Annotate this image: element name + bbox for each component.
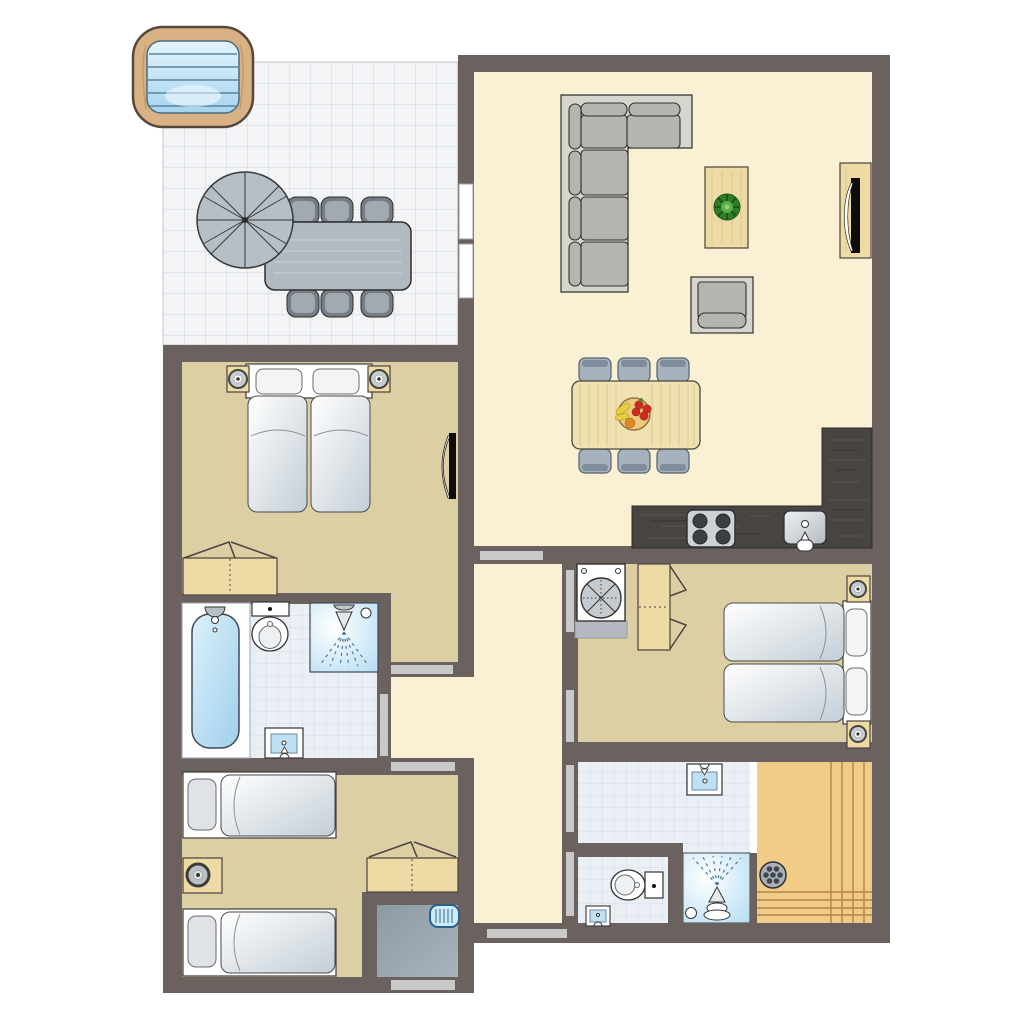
wall-top (458, 55, 890, 72)
nightstand (227, 366, 249, 392)
hot-tub (133, 27, 253, 127)
sauna-stove (760, 862, 786, 888)
toilet (611, 870, 663, 900)
wall-outer-left (163, 345, 182, 993)
terrace-chair (321, 289, 353, 317)
washbasin (265, 728, 303, 758)
bathroom2-floor (578, 762, 750, 853)
sauna-floor (757, 762, 872, 923)
nightstand (847, 576, 870, 602)
wall-storage-top (362, 892, 458, 905)
armchair (691, 277, 753, 333)
hallway-floor (474, 564, 562, 923)
door-toilet-room (566, 852, 574, 916)
terrace-window-2 (459, 244, 473, 298)
shower (310, 603, 378, 672)
door-bedroom3 (566, 690, 574, 742)
door-bedroom2 (391, 762, 455, 771)
wall-shower-sauna (750, 853, 757, 923)
wall-toilet-top (578, 843, 683, 857)
dining-chair (579, 449, 611, 473)
terrace-chair (361, 197, 393, 225)
tv-cabinet (840, 163, 871, 258)
floor-plan-page (0, 0, 1024, 1024)
door-storage-back (391, 980, 455, 990)
terrace-chair (321, 197, 353, 225)
terrace-chair (361, 289, 393, 317)
coffee-table (705, 167, 748, 248)
bedroom1-floor-ext (391, 593, 458, 662)
wall-bed3-bath2 (562, 742, 890, 762)
washing-machine (575, 564, 627, 638)
single-bed (183, 909, 336, 976)
floor-plan-canvas (0, 0, 1024, 1024)
door-laundry-nook (566, 570, 574, 632)
wall-terrace-bottom (163, 345, 474, 362)
dining-chair (657, 449, 689, 473)
dining-chair (618, 358, 650, 382)
wall-toilet-shower (668, 843, 683, 923)
door-living-hall (480, 551, 543, 560)
small-washbasin (586, 906, 610, 926)
dining-chair (579, 358, 611, 382)
door-bedroom1 (391, 665, 453, 674)
door-bathroom2 (566, 765, 574, 832)
bathtub (182, 603, 250, 758)
hallway-alcove-floor (391, 677, 474, 758)
terrace-window-1 (459, 184, 473, 239)
wall-right (872, 55, 890, 943)
dining-chair (657, 358, 689, 382)
terrace-chair (287, 289, 319, 317)
nightstand (183, 858, 222, 893)
tv (851, 178, 860, 253)
toilet (252, 602, 289, 651)
plant (714, 194, 740, 220)
dining-table (572, 381, 700, 449)
heater-radiator (430, 905, 459, 927)
nightstand (368, 366, 390, 392)
wall-terrace-living (458, 55, 474, 677)
dining-chair (618, 449, 650, 473)
nightstand (847, 721, 870, 748)
wall-bed2-right (458, 758, 474, 993)
door-entrance (487, 929, 567, 938)
washbasin (687, 764, 722, 795)
door-bathroom1 (380, 694, 388, 756)
single-bed (183, 772, 336, 838)
stove (687, 510, 735, 547)
parasol (197, 172, 293, 268)
